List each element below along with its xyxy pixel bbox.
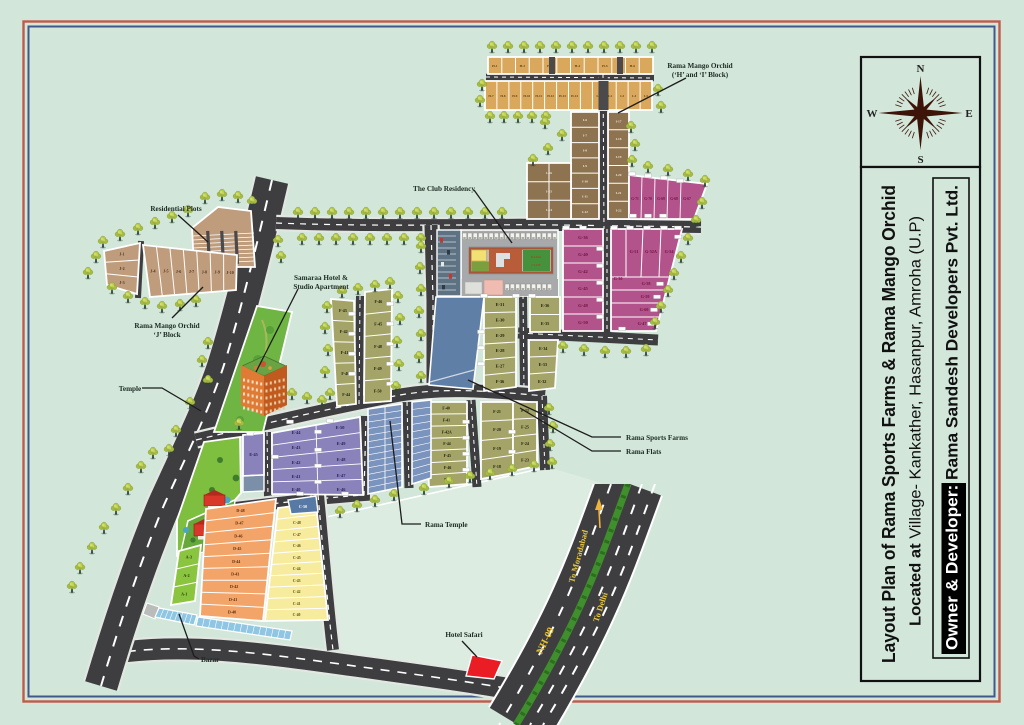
svg-text:Located at Village- Kankather,: Located at Village- Kankather, Hasanpur,… xyxy=(908,216,925,626)
svg-text:G-36: G-36 xyxy=(578,235,588,240)
svg-text:I-11: I-11 xyxy=(582,195,588,199)
svg-text:(‘H’ and ‘I’ Block): (‘H’ and ‘I’ Block) xyxy=(672,71,729,79)
svg-text:F-45: F-45 xyxy=(374,322,382,327)
svg-text:S: S xyxy=(917,154,923,166)
svg-text:F-41: F-41 xyxy=(443,418,450,422)
svg-text:Temple: Temple xyxy=(119,385,142,393)
svg-text:G-70: G-70 xyxy=(644,197,652,201)
svg-text:I-18: I-18 xyxy=(616,137,622,141)
svg-text:G-54: G-54 xyxy=(665,249,675,254)
svg-text:E-47: E-47 xyxy=(337,473,347,478)
svg-text:F-25: F-25 xyxy=(521,424,529,429)
svg-text:H-5: H-5 xyxy=(602,64,608,68)
svg-text:I-7: I-7 xyxy=(583,133,587,137)
svg-text:E-31: E-31 xyxy=(496,302,505,307)
svg-text:H-12: H-12 xyxy=(547,94,554,98)
svg-text:CLUB: CLUB xyxy=(531,263,541,267)
svg-text:E-41: E-41 xyxy=(292,474,301,479)
svg-text:A-1: A-1 xyxy=(181,591,187,596)
svg-text:E-43: E-43 xyxy=(292,445,302,450)
svg-text:H-14: H-14 xyxy=(571,94,578,98)
svg-text:I-3: I-3 xyxy=(620,94,624,98)
svg-text:I-17: I-17 xyxy=(616,119,622,123)
svg-text:G-60: G-60 xyxy=(640,307,649,312)
svg-text:F-42: F-42 xyxy=(340,329,348,334)
svg-text:F-36: F-36 xyxy=(496,379,505,384)
svg-text:Bazar: Bazar xyxy=(201,656,220,664)
svg-text:I-9: I-9 xyxy=(583,164,587,168)
svg-text:E-46: E-46 xyxy=(337,487,347,492)
svg-text:C-42: C-42 xyxy=(293,590,301,594)
svg-text:I-20: I-20 xyxy=(616,173,622,177)
svg-text:J-6: J-6 xyxy=(176,269,181,274)
svg-text:H-13: H-13 xyxy=(559,94,566,98)
svg-text:Rama Temple: Rama Temple xyxy=(425,521,468,529)
svg-text:E-36: E-36 xyxy=(541,303,549,308)
svg-text:C-43: C-43 xyxy=(293,579,301,583)
svg-text:C-44: C-44 xyxy=(293,567,301,571)
svg-text:C-47: C-47 xyxy=(293,533,301,537)
svg-text:N: N xyxy=(917,63,925,75)
svg-text:G-69: G-69 xyxy=(657,197,665,201)
svg-text:H-10: H-10 xyxy=(523,94,530,98)
svg-text:H-7: H-7 xyxy=(488,94,494,98)
svg-text:C-45: C-45 xyxy=(293,556,301,560)
svg-text:F-48: F-48 xyxy=(374,344,382,349)
svg-text:F-46: F-46 xyxy=(375,299,383,304)
svg-text:D-48: D-48 xyxy=(236,508,244,513)
svg-text:F-40: F-40 xyxy=(341,371,349,376)
svg-text:F-42A: F-42A xyxy=(442,430,452,434)
svg-text:C-41: C-41 xyxy=(293,602,301,606)
svg-text:G-58: G-58 xyxy=(642,281,651,286)
svg-text:Owner & Developer: Rama Sandes: Owner & Developer: Rama Sandesh Develope… xyxy=(943,185,962,650)
svg-text:E-34: E-34 xyxy=(539,346,548,351)
svg-text:E-35: E-35 xyxy=(541,321,549,326)
svg-text:F-18: F-18 xyxy=(493,464,501,469)
svg-text:C-40: C-40 xyxy=(293,613,301,617)
svg-text:I-19: I-19 xyxy=(616,155,622,159)
svg-text:E-49: E-49 xyxy=(337,441,347,446)
svg-text:F-19: F-19 xyxy=(493,446,501,451)
svg-text:J-3: J-3 xyxy=(119,280,124,285)
svg-text:D-43: D-43 xyxy=(231,572,239,577)
svg-text:RAMA: RAMA xyxy=(531,255,542,259)
svg-text:G-47: G-47 xyxy=(638,321,647,326)
svg-text:G-30: G-30 xyxy=(614,276,623,281)
svg-text:E-45: E-45 xyxy=(249,452,257,457)
svg-text:E-50: E-50 xyxy=(336,425,346,430)
svg-text:F-43: F-43 xyxy=(339,308,347,313)
svg-text:J-2: J-2 xyxy=(119,266,124,271)
svg-text:G-51: G-51 xyxy=(630,249,639,254)
svg-text:Rama Sports Farms: Rama Sports Farms xyxy=(626,434,688,442)
svg-text:E-30: E-30 xyxy=(496,318,506,323)
svg-text:E: E xyxy=(965,108,972,120)
svg-text:H-11: H-11 xyxy=(535,94,542,98)
svg-text:H-1: H-1 xyxy=(492,64,498,68)
svg-text:E-40: E-40 xyxy=(292,487,302,492)
svg-text:Layout Plan of Rama Sports Far: Layout Plan of Rama Sports Farms & Rama … xyxy=(879,185,899,663)
svg-text:W: W xyxy=(867,108,878,120)
svg-text:E-44: E-44 xyxy=(292,430,302,435)
svg-text:C-48: C-48 xyxy=(293,521,301,525)
svg-text:D-47: D-47 xyxy=(235,521,243,526)
svg-text:‘J’ Block: ‘J’ Block xyxy=(153,331,180,339)
svg-text:E-42: E-42 xyxy=(292,460,301,465)
svg-text:F-21: F-21 xyxy=(493,409,501,414)
svg-text:A-3: A-3 xyxy=(186,555,192,560)
svg-text:J-5: J-5 xyxy=(163,269,168,274)
svg-text:J-1: J-1 xyxy=(119,252,124,257)
svg-text:Rama Flats: Rama Flats xyxy=(626,448,662,456)
svg-text:H-9: H-9 xyxy=(512,94,518,98)
svg-text:J-10: J-10 xyxy=(226,270,233,275)
svg-text:H-2: H-2 xyxy=(520,64,526,68)
svg-text:F-23: F-23 xyxy=(521,458,529,463)
svg-text:Studio Apartment: Studio Apartment xyxy=(293,283,349,291)
svg-text:D-42: D-42 xyxy=(230,584,238,589)
svg-text:I-4: I-4 xyxy=(632,94,636,98)
svg-text:A-2: A-2 xyxy=(183,573,189,578)
svg-text:Rama Mango Orchid: Rama Mango Orchid xyxy=(134,322,199,330)
svg-text:Residential Plots: Residential Plots xyxy=(150,205,202,213)
svg-text:E-32: E-32 xyxy=(538,379,546,384)
svg-text:C-50: C-50 xyxy=(299,504,307,509)
svg-text:D-45: D-45 xyxy=(233,546,241,551)
svg-text:C-46: C-46 xyxy=(293,544,301,548)
svg-text:H-6: H-6 xyxy=(630,64,636,68)
svg-text:G-52A: G-52A xyxy=(645,249,657,254)
svg-text:G-67: G-67 xyxy=(683,197,691,201)
svg-text:I-2: I-2 xyxy=(608,94,612,98)
svg-text:G-68: G-68 xyxy=(670,197,678,201)
svg-text:G-71: G-71 xyxy=(631,197,639,201)
svg-text:E-48: E-48 xyxy=(337,457,347,462)
svg-text:F-20: F-20 xyxy=(493,427,501,432)
svg-text:D-44: D-44 xyxy=(232,559,240,564)
svg-text:G-50: G-50 xyxy=(578,320,588,325)
svg-text:I-12: I-12 xyxy=(582,210,588,214)
svg-text:D-41: D-41 xyxy=(229,597,237,602)
svg-text:E-33: E-33 xyxy=(539,362,547,367)
svg-text:F-40: F-40 xyxy=(442,407,449,411)
svg-text:F-46: F-46 xyxy=(444,466,451,470)
svg-text:I-10: I-10 xyxy=(582,179,588,183)
svg-text:G-45: G-45 xyxy=(578,286,588,291)
svg-text:H-4: H-4 xyxy=(575,64,581,68)
svg-text:D-40: D-40 xyxy=(228,610,236,615)
svg-text:F-50: F-50 xyxy=(374,388,382,393)
svg-text:G-42: G-42 xyxy=(578,269,588,274)
svg-text:F-44: F-44 xyxy=(443,442,450,446)
svg-text:J-7: J-7 xyxy=(189,269,194,274)
svg-text:I-21: I-21 xyxy=(616,191,622,195)
svg-text:D-46: D-46 xyxy=(234,533,242,538)
svg-text:G-48: G-48 xyxy=(578,303,588,308)
svg-text:F-24: F-24 xyxy=(521,441,529,446)
svg-text:G-40: G-40 xyxy=(578,252,588,257)
svg-text:F-49: F-49 xyxy=(374,366,382,371)
svg-text:F-44: F-44 xyxy=(342,392,350,397)
svg-text:I-6: I-6 xyxy=(583,118,587,122)
svg-text:H-8: H-8 xyxy=(500,94,506,98)
svg-text:Hotel Safari: Hotel Safari xyxy=(445,631,482,639)
svg-text:Samaraa Hotel &: Samaraa Hotel & xyxy=(294,274,348,282)
svg-text:E-29: E-29 xyxy=(496,333,506,338)
svg-text:J-9: J-9 xyxy=(215,270,220,275)
svg-text:J-8: J-8 xyxy=(202,269,207,274)
svg-text:G-59: G-59 xyxy=(641,294,650,299)
svg-text:Rama Mango Orchid: Rama Mango Orchid xyxy=(667,62,732,70)
svg-text:E-27: E-27 xyxy=(496,364,506,369)
svg-text:F-41: F-41 xyxy=(341,350,349,355)
svg-text:J-4: J-4 xyxy=(150,269,155,274)
svg-text:I-8: I-8 xyxy=(583,149,587,153)
svg-text:F-45: F-45 xyxy=(444,454,451,458)
svg-text:I-22: I-22 xyxy=(616,209,622,213)
svg-text:The Club Residency: The Club Residency xyxy=(413,185,475,193)
svg-text:E-28: E-28 xyxy=(496,348,506,353)
